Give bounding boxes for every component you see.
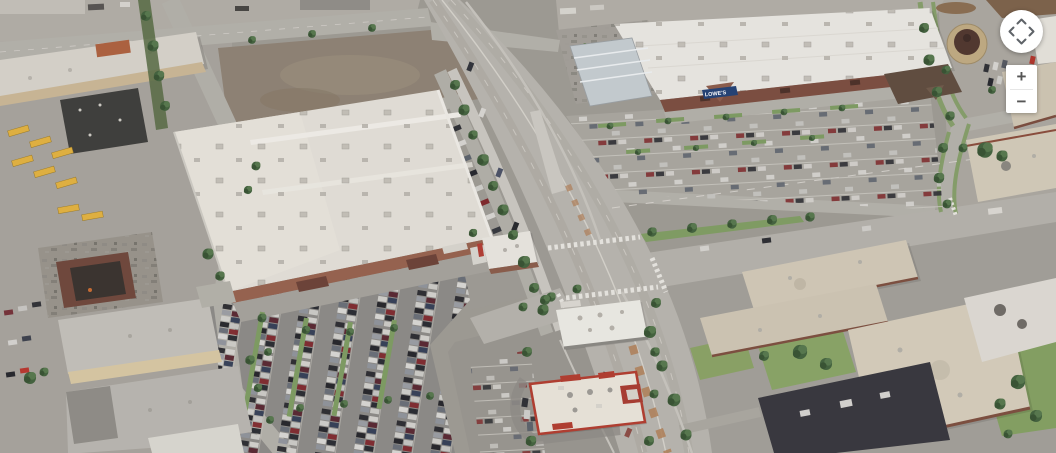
- zoom-control: + −: [1006, 65, 1037, 113]
- aerial-imagery[interactable]: LOWE'S: [0, 0, 1056, 453]
- photo-tint-overlay: [0, 0, 1056, 453]
- chevron-left-icon[interactable]: [1010, 28, 1014, 36]
- chevron-down-icon[interactable]: [1018, 40, 1026, 44]
- chevron-right-icon[interactable]: [1030, 28, 1034, 36]
- pan-control-icons: [1000, 10, 1043, 53]
- zoom-in-button[interactable]: +: [1006, 65, 1037, 89]
- zoom-out-button[interactable]: −: [1006, 90, 1037, 114]
- map-viewport[interactable]: LOWE'S: [0, 0, 1056, 453]
- pan-control[interactable]: [1000, 10, 1043, 53]
- chevron-up-icon[interactable]: [1018, 20, 1026, 24]
